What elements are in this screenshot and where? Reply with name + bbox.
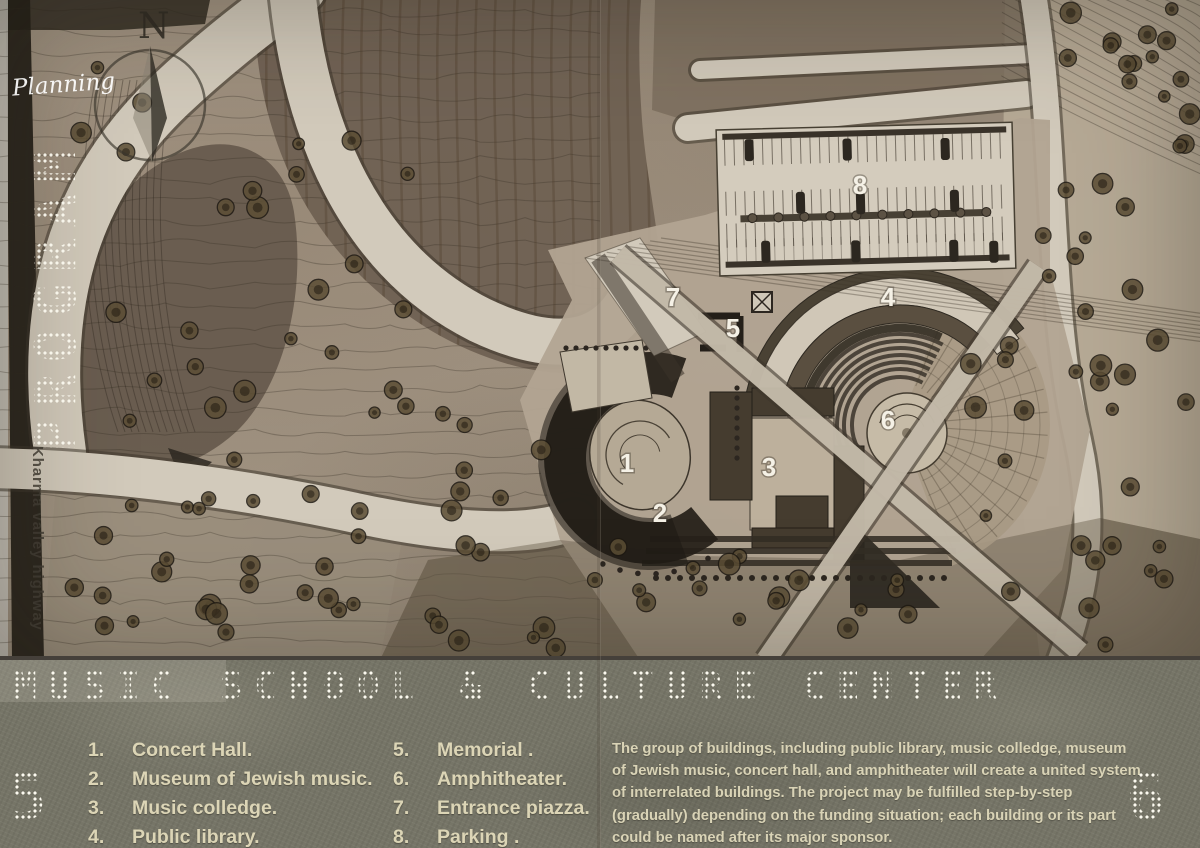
sheet-number-right: 6	[1126, 766, 1165, 830]
legend-item-label: Public library.	[132, 823, 260, 848]
legend-item-number: 2.	[88, 765, 132, 794]
map-label-4: 4	[881, 282, 896, 312]
legend-item: 8.Parking .	[393, 823, 623, 848]
legend-item-number: 7.	[393, 794, 437, 823]
legend-column-2: 5.Memorial .6.Amphitheater.7.Entrance pi…	[393, 736, 623, 848]
legend-item: 7.Entrance piazza.	[393, 794, 623, 823]
page-title: MUSIC SCHOOL & CULTURE CENTER	[14, 664, 1008, 708]
legend-item-number: 4.	[88, 823, 132, 848]
map-label-7: 7	[666, 282, 680, 312]
legend-item-label: Museum of Jewish music.	[132, 765, 373, 794]
legend-item-label: Amphitheater.	[437, 765, 567, 794]
legend-item: 3.Music colledge.	[88, 794, 393, 823]
program-watermark: PROGRAM	[24, 138, 89, 452]
compass-north-label: N	[138, 6, 170, 47]
legend-item: 4.Public library.	[88, 823, 393, 848]
presentation-board: N 12345678 Planning PROGRAM Kharma valle…	[0, 0, 1200, 848]
map-label-3: 3	[762, 452, 776, 482]
legend-item-label: Parking .	[437, 823, 519, 848]
highway-label: Kharma valley highway	[29, 446, 46, 631]
legend-item-label: Memorial .	[437, 736, 533, 765]
legend-item-number: 5.	[393, 736, 437, 765]
map-label-5: 5	[726, 313, 740, 343]
legend: 1.Concert Hall.2.Museum of Jewish music.…	[88, 736, 623, 848]
legend-item-number: 6.	[393, 765, 437, 794]
sheet-number-left: 5	[8, 766, 47, 830]
map-label-2: 2	[653, 498, 667, 528]
map-label-8: 8	[853, 170, 867, 200]
legend-item-label: Music colledge.	[132, 794, 277, 823]
sheet-fold-line	[597, 0, 601, 848]
legend-item-number: 3.	[88, 794, 132, 823]
legend-item-number: 8.	[393, 823, 437, 848]
legend-column-1: 1.Concert Hall.2.Museum of Jewish music.…	[88, 736, 393, 848]
legend-item-label: Entrance piazza.	[437, 794, 590, 823]
legend-item-label: Concert Hall.	[132, 736, 252, 765]
project-description: The group of buildings, including public…	[612, 738, 1142, 848]
legend-item: 2.Museum of Jewish music.	[88, 765, 393, 794]
legend-item: 5.Memorial .	[393, 736, 623, 765]
map-label-1: 1	[620, 448, 634, 478]
legend-item: 6.Amphitheater.	[393, 765, 623, 794]
legend-item-number: 1.	[88, 736, 132, 765]
map-label-6: 6	[881, 405, 895, 435]
legend-item: 1.Concert Hall.	[88, 736, 393, 765]
